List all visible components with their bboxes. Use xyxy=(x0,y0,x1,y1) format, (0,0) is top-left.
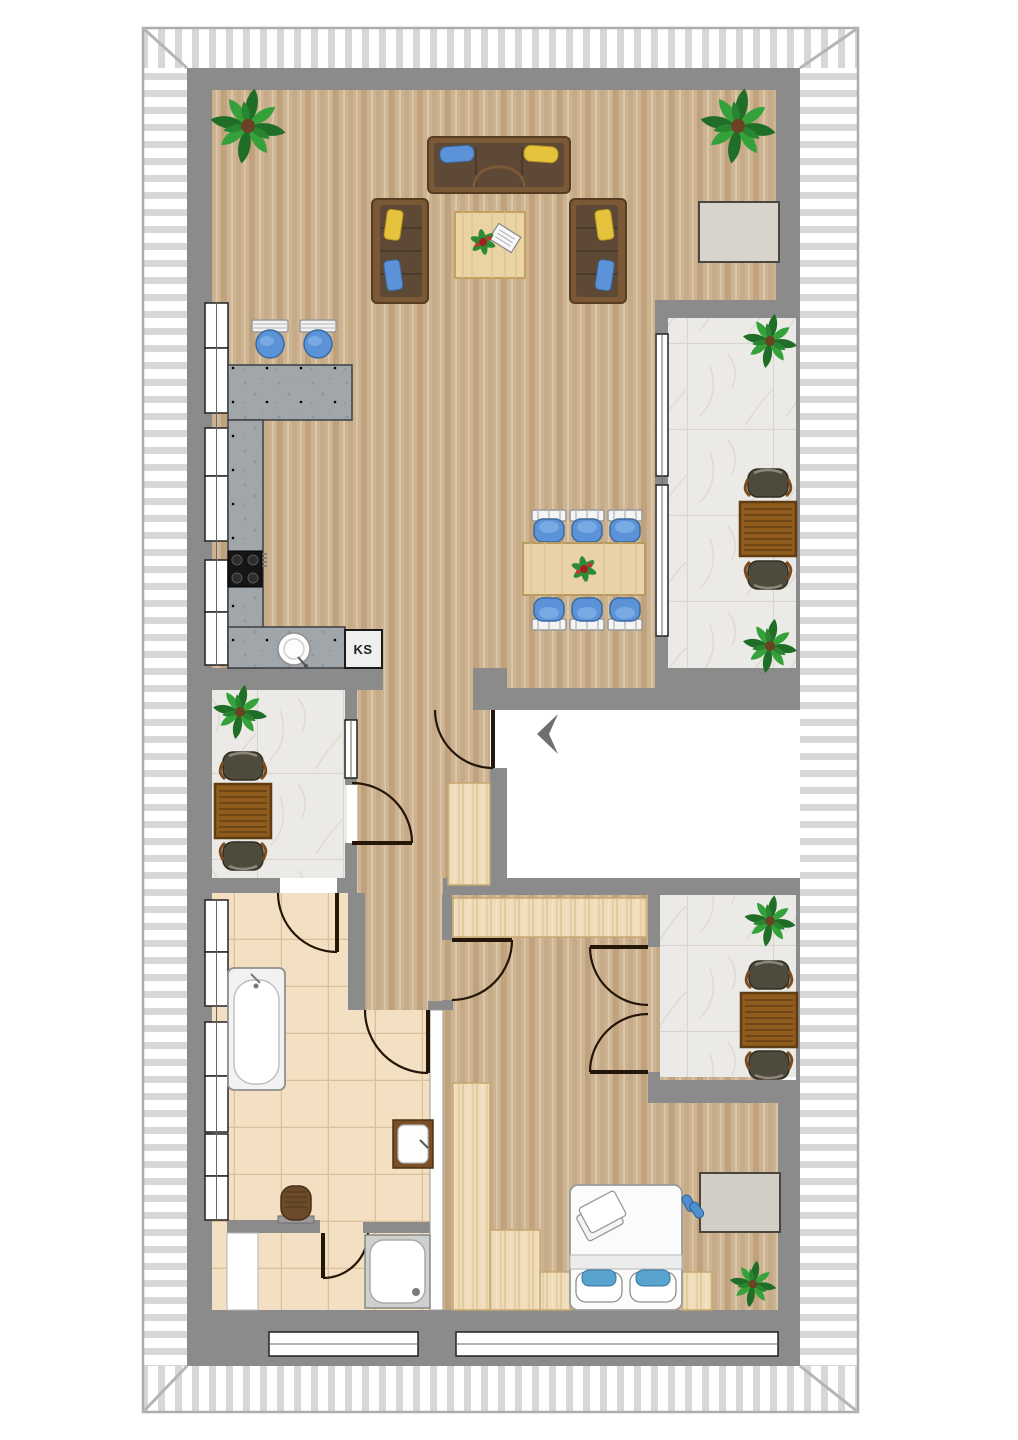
fridge-label: KS xyxy=(353,642,372,657)
outdoor-chair xyxy=(746,961,792,989)
outdoor-table xyxy=(740,502,796,556)
bedroom-wardrobe-corner xyxy=(490,1230,540,1310)
coffee-table xyxy=(455,212,525,278)
floor-plan-page: KS xyxy=(0,0,1018,1440)
floor-plan-drawing: KS xyxy=(0,0,1018,1440)
loveseat-left xyxy=(372,199,428,303)
dining-chair xyxy=(608,510,642,542)
hall-wardrobe xyxy=(448,783,490,885)
stairwell-landing xyxy=(507,710,800,878)
bedroom-wardrobe-top xyxy=(453,898,647,937)
dining-table xyxy=(523,543,645,595)
dining-chair xyxy=(532,510,566,542)
dining-chair xyxy=(608,598,642,630)
sideboard-bedroom xyxy=(700,1173,780,1232)
fridge: KS xyxy=(345,630,382,668)
washbasin xyxy=(393,1120,433,1168)
outdoor-table xyxy=(741,993,797,1047)
nightstand-left xyxy=(540,1272,570,1310)
nightstand-right xyxy=(682,1272,712,1310)
duct-shaft xyxy=(227,1233,258,1310)
dining-chair xyxy=(532,598,566,630)
dining-chair xyxy=(570,598,604,630)
outdoor-chair xyxy=(220,842,266,870)
double-bed xyxy=(570,1185,682,1310)
outdoor-table xyxy=(215,784,271,838)
outdoor-chair xyxy=(746,1051,792,1079)
stove xyxy=(228,551,267,587)
outdoor-chair xyxy=(220,752,266,780)
shower-tray xyxy=(365,1235,430,1308)
toilet xyxy=(278,1186,314,1223)
bathtub xyxy=(228,968,285,1090)
outdoor-chair xyxy=(745,469,791,497)
bedroom-wardrobe-left xyxy=(453,1083,490,1310)
dining-chair xyxy=(570,510,604,542)
hall-opening-floor xyxy=(383,668,473,690)
loveseat-right xyxy=(570,199,626,303)
sideboard-living xyxy=(699,202,779,262)
dining-area xyxy=(523,510,645,630)
three-seat-sofa xyxy=(428,137,570,193)
outdoor-chair xyxy=(745,561,791,589)
